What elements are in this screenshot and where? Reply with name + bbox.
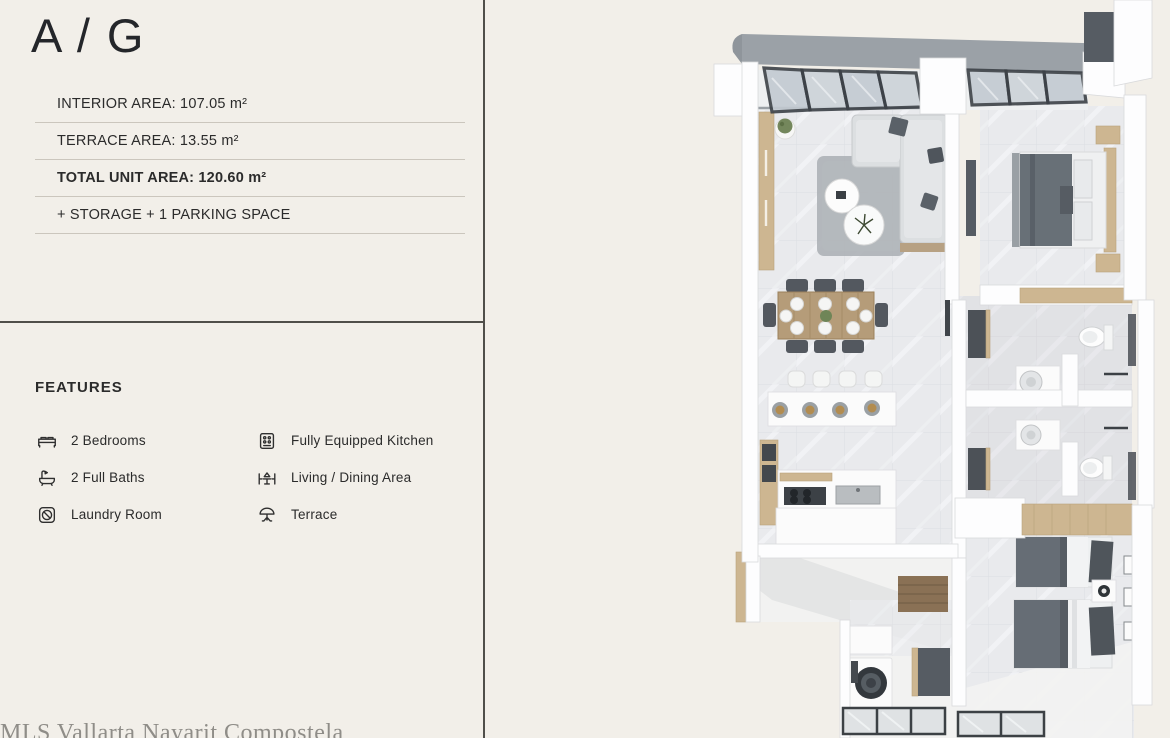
feature-label: Laundry Room — [71, 507, 162, 522]
vertical-divider — [483, 0, 485, 738]
spec-row-terrace-area: TERRACE AREA: 13.55 m² — [35, 123, 465, 160]
stove-icon — [255, 429, 279, 453]
area-specs: INTERIOR AREA: 107.05 m² TERRACE AREA: 1… — [35, 86, 465, 234]
console-cabinet — [759, 112, 774, 270]
feature-label: Living / Dining Area — [291, 470, 411, 485]
spec-text: TOTAL UNIT AREA: 120.60 m² — [57, 170, 266, 186]
parasol-icon — [255, 503, 279, 527]
toilet — [1080, 456, 1112, 480]
window-left — [843, 708, 945, 734]
window-right — [958, 712, 1044, 736]
tv-console — [966, 160, 976, 236]
closet-band — [1022, 504, 1132, 535]
unit-name: A / G — [31, 8, 146, 63]
nightstand — [1096, 126, 1120, 144]
floor-plan-render — [700, 0, 1170, 738]
watermark-text: MLS Vallarta Nayarit Compostela — [0, 720, 344, 738]
shower-glass — [1128, 452, 1136, 500]
bathtub-icon — [35, 466, 59, 490]
plant — [778, 119, 793, 134]
feature-label: 2 Bedrooms — [71, 433, 146, 448]
cabinet — [918, 648, 950, 696]
horizontal-divider — [0, 321, 484, 323]
twin-beds — [1014, 537, 1115, 668]
spec-row-interior-area: INTERIOR AREA: 107.05 m² — [35, 86, 465, 123]
spec-row-total-area: TOTAL UNIT AREA: 120.60 m² — [35, 160, 465, 197]
laundry-counter — [848, 626, 892, 654]
features-heading: FEATURES — [35, 379, 123, 396]
shower-glass — [1128, 314, 1136, 366]
feature-laundry: Laundry Room — [35, 496, 235, 533]
apartment-eyebrow-label: APARTMENT — [34, 0, 154, 4]
feature-baths: 2 Full Baths — [35, 459, 235, 496]
wardrobe-panel — [1084, 12, 1114, 62]
closet-niche — [968, 310, 986, 358]
feature-label: Terrace — [291, 507, 337, 522]
feature-living-dining: Living / Dining Area — [255, 459, 455, 496]
spec-text: + STORAGE + 1 PARKING SPACE — [57, 207, 290, 223]
over-bath-wood-band — [1020, 288, 1132, 303]
feature-bedrooms: 2 Bedrooms — [35, 422, 235, 459]
spec-row-storage-parking: + STORAGE + 1 PARKING SPACE — [35, 197, 465, 234]
feature-kitchen: Fully Equipped Kitchen — [255, 422, 455, 459]
bed — [1012, 152, 1106, 248]
nightstand — [1096, 254, 1120, 272]
hallway — [898, 576, 948, 612]
spec-text: INTERIOR AREA: 107.05 m² — [57, 96, 247, 112]
feature-label: 2 Full Baths — [71, 470, 145, 485]
washing-machine-icon — [35, 503, 59, 527]
feature-terrace: Terrace — [255, 496, 455, 533]
closet-niche — [968, 448, 986, 490]
apartment-spec-sheet: APARTMENT A / G INTERIOR AREA: 107.05 m²… — [0, 0, 1170, 738]
spec-text: TERRACE AREA: 13.55 m² — [57, 133, 239, 149]
pergola-left — [764, 68, 922, 112]
bed-icon — [35, 429, 59, 453]
feature-label: Fully Equipped Kitchen — [291, 433, 434, 448]
dining-table-icon — [255, 466, 279, 490]
bottom-windows — [843, 708, 1044, 736]
island — [776, 508, 896, 546]
